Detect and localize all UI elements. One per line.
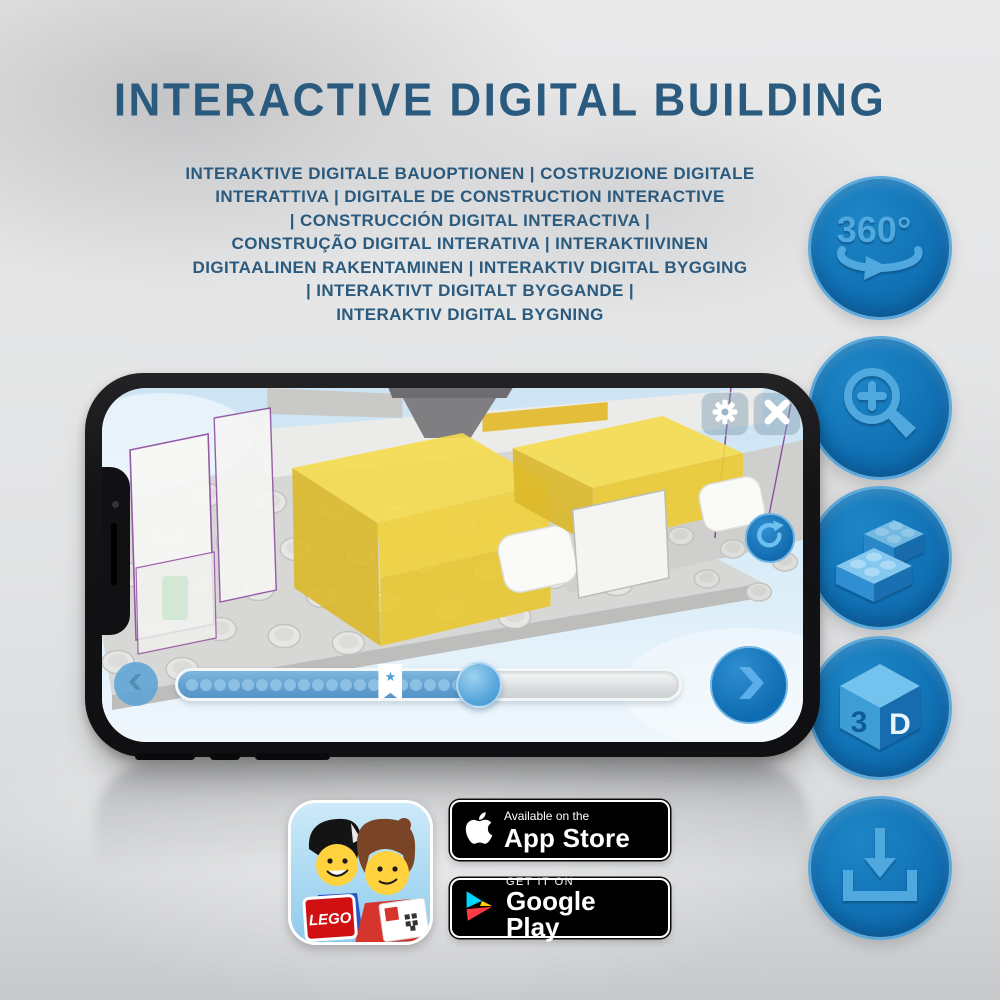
google-play-icon <box>464 889 496 928</box>
app-store-name: App Store <box>504 825 630 851</box>
app-store-badge[interactable]: Available on the App Store <box>450 800 670 860</box>
close-icon <box>762 397 792 432</box>
front-camera <box>112 501 119 508</box>
lego-app-icon: LEGO <box>288 800 433 945</box>
feature-circle-3d: 3 D <box>808 636 952 780</box>
lego-bricks-icon <box>830 508 930 609</box>
subtitle-line: | CONSTRUCCIÓN DIGITAL INTERACTIVA | <box>115 209 825 232</box>
progress-fill <box>178 671 479 698</box>
progress-dot <box>256 679 268 691</box>
progress-dot <box>270 679 282 691</box>
progress-dot <box>242 679 254 691</box>
3d-cube-icon: 3 D <box>832 658 928 759</box>
phone-mockup: ★ <box>85 373 820 757</box>
subtitle-line: DIGITAALINEN RAKENTAMINEN | INTERAKTIV D… <box>115 256 825 279</box>
phone-notch <box>102 467 130 635</box>
app-store-badge-text: Available on the App Store <box>504 810 630 851</box>
progress-dot <box>298 679 310 691</box>
progress-dot <box>228 679 240 691</box>
feature-circle-360: 360° <box>808 176 952 320</box>
360-rotation-icon: 360° <box>828 198 932 299</box>
app-screen: ★ <box>102 388 803 742</box>
gear-icon <box>708 395 742 434</box>
progress-dot <box>284 679 296 691</box>
feature-circle-zoom <box>808 336 952 480</box>
rotate-view-button[interactable] <box>745 513 795 563</box>
progress-dot <box>312 679 324 691</box>
subtitle-translations: INTERAKTIVE DIGITALE BAUOPTIONEN | COSTR… <box>115 162 825 326</box>
subtitle-line: INTERAKTIVE DIGITALE BAUOPTIONEN | COSTR… <box>115 162 825 185</box>
apple-icon <box>464 810 494 851</box>
cube-face-d: D <box>889 708 911 741</box>
close-button[interactable] <box>753 392 801 436</box>
cube-face-3: 3 <box>851 706 868 739</box>
zoom-in-icon <box>834 360 926 457</box>
build-progress-bar[interactable]: ★ <box>175 668 682 701</box>
speaker-slit <box>111 523 117 585</box>
marketing-page: INTERACTIVE DIGITAL BUILDING INTERAKTIVE… <box>0 0 1000 1000</box>
feature-circle-bricks <box>808 486 952 630</box>
google-play-name: Google Play <box>506 888 656 940</box>
chevron-left-icon <box>125 671 147 698</box>
chevron-right-icon <box>729 663 769 708</box>
progress-dot <box>326 679 338 691</box>
360-label: 360° <box>837 209 911 250</box>
subtitle-line: INTERATTIVA | DIGITALE DE CONSTRUCTION I… <box>115 185 825 208</box>
progress-dot <box>340 679 352 691</box>
progress-dot <box>200 679 212 691</box>
page-title: INTERACTIVE DIGITAL BUILDING <box>0 75 1000 128</box>
progress-dot <box>368 679 380 691</box>
phone-side-button <box>255 753 330 760</box>
progress-dot <box>424 679 436 691</box>
progress-dot <box>410 679 422 691</box>
download-icon <box>834 820 926 917</box>
google-play-badge-text: GET IT ON Google Play <box>506 877 656 940</box>
progress-dot <box>186 679 198 691</box>
subtitle-line: INTERAKTIV DIGITAL BYGNING <box>115 303 825 326</box>
progress-dot <box>354 679 366 691</box>
progress-thumb[interactable] <box>456 662 502 708</box>
rotate-icon <box>753 519 787 558</box>
previous-step-button[interactable] <box>114 662 158 706</box>
phone-side-button <box>210 753 240 760</box>
progress-dot <box>438 679 450 691</box>
phone-side-button <box>135 753 195 760</box>
feature-circle-download <box>808 796 952 940</box>
next-step-button[interactable] <box>710 646 788 724</box>
app-store-tagline: Available on the <box>504 810 630 822</box>
lego-logo-text: LEGO <box>308 909 352 929</box>
star-icon: ★ <box>385 669 397 684</box>
settings-button[interactable] <box>701 392 749 436</box>
subtitle-line: | INTERAKTIVT DIGITALT BYGGANDE | <box>115 279 825 302</box>
subtitle-line: CONSTRUÇÃO DIGITAL INTERATIVA | INTERAKT… <box>115 232 825 255</box>
progress-dot <box>214 679 226 691</box>
google-play-badge[interactable]: GET IT ON Google Play <box>450 878 670 938</box>
